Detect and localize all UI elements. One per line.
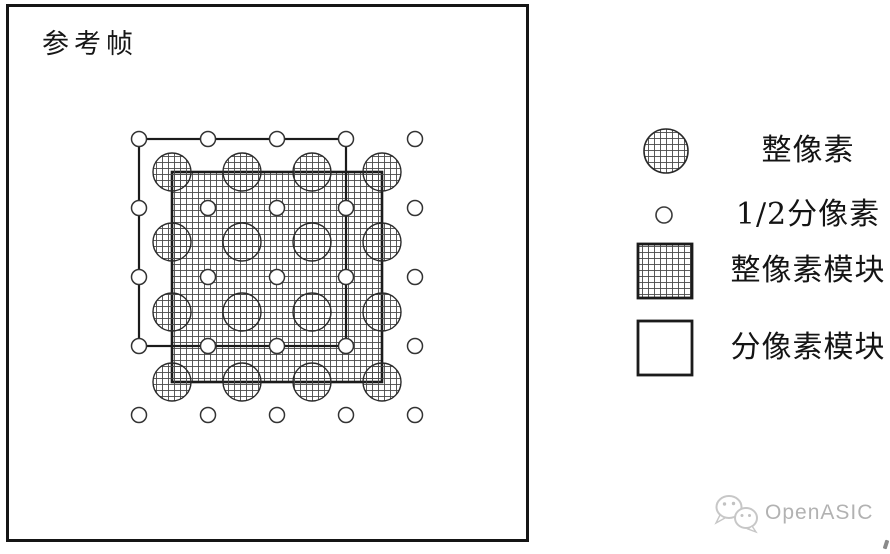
half-pixel-circle <box>201 270 216 285</box>
half-pixel-circle <box>339 408 354 423</box>
half-pixel-circle <box>270 270 285 285</box>
full-pixel-circle <box>363 363 401 401</box>
full-pixel-circle <box>293 293 331 331</box>
legend-marker-sub-pixel-block <box>638 321 692 375</box>
pixel-grid <box>132 132 423 423</box>
full-pixel-circle <box>363 223 401 261</box>
half-pixel-circle <box>201 408 216 423</box>
legend-label-full-pixel: 整像素 <box>700 133 890 169</box>
half-pixel-circle <box>132 270 147 285</box>
full-pixel-circle <box>293 223 331 261</box>
full-pixel-circle <box>293 153 331 191</box>
full-pixel-circle <box>153 153 191 191</box>
legend-markers <box>638 129 692 375</box>
wechat-icon <box>716 496 757 532</box>
half-pixel-circle <box>132 408 147 423</box>
half-pixel-circle <box>201 201 216 216</box>
full-pixel-circle <box>363 293 401 331</box>
legend-label-half-pixel: 1/2分像素 <box>700 197 890 233</box>
half-pixel-circle <box>339 132 354 147</box>
full-pixel-circle <box>223 293 261 331</box>
legend-marker-full-pixel-block <box>638 244 692 298</box>
half-pixel-circle <box>132 339 147 354</box>
half-pixel-circle <box>408 201 423 216</box>
half-pixel-circle <box>408 270 423 285</box>
figure-half-pixel-interpolation: 参考帧 整像素 1/2分像素 整像素模块 分像素模块 OpenASIC <box>0 0 890 554</box>
half-pixel-circle <box>132 132 147 147</box>
full-pixel-circle <box>153 223 191 261</box>
half-pixel-circle <box>270 408 285 423</box>
legend-label-full-pixel-block: 整像素模块 <box>700 253 890 289</box>
half-pixel-circle <box>201 132 216 147</box>
full-pixel-circle <box>363 153 401 191</box>
legend-marker-half-pixel <box>656 207 672 223</box>
half-pixel-circle <box>339 339 354 354</box>
half-pixel-circle <box>408 339 423 354</box>
half-pixel-circle <box>132 201 147 216</box>
half-pixel-circle <box>408 408 423 423</box>
half-pixel-circle <box>408 132 423 147</box>
watermark-brand: OpenASIC <box>765 501 873 525</box>
half-pixel-circle <box>201 339 216 354</box>
full-pixel-circle <box>223 223 261 261</box>
half-pixel-circle <box>270 339 285 354</box>
full-pixel-circle <box>223 153 261 191</box>
full-pixel-circle <box>153 293 191 331</box>
full-pixel-circle <box>153 363 191 401</box>
half-pixel-circle <box>270 132 285 147</box>
half-pixel-circle <box>270 201 285 216</box>
half-pixel-circle <box>339 270 354 285</box>
legend-marker-full-pixel <box>644 129 688 173</box>
full-pixel-circle <box>223 363 261 401</box>
legend-label-sub-pixel-block: 分像素模块 <box>700 330 890 366</box>
half-pixel-circle <box>339 201 354 216</box>
full-pixel-circle <box>293 363 331 401</box>
